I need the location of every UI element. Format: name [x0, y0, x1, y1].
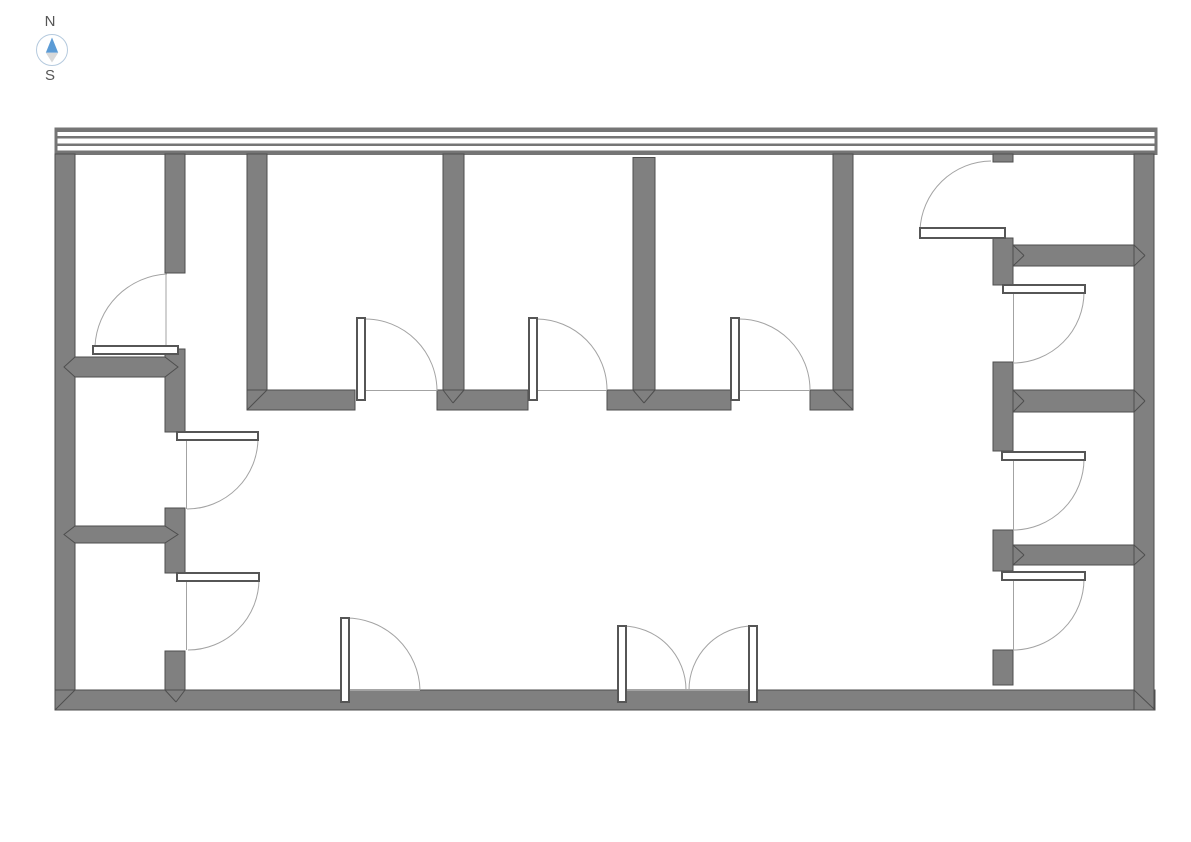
door-right-room-1-leaf	[920, 228, 1005, 238]
door-top-left-room-swing-arc	[95, 274, 167, 346]
window-band-stripe	[55, 144, 1157, 147]
right-wall-c	[993, 530, 1013, 571]
door-entry-double-right-leaf	[749, 626, 757, 702]
compass-needle-north-icon	[46, 38, 58, 53]
door-right-room-2-leaf	[1003, 285, 1085, 293]
door-left-room-3-swing-arc	[188, 579, 259, 650]
corridor-wall-c	[607, 390, 731, 410]
partition-top-3	[633, 158, 655, 411]
corridor-wall-a	[247, 390, 355, 410]
floor-plan-canvas: N S	[0, 0, 1191, 842]
door-right-room-4-leaf	[1002, 572, 1085, 580]
door-entry-single-leaf	[341, 618, 349, 702]
compass-north-label: N	[45, 13, 56, 30]
door-entry-double-left-swing-arc	[622, 626, 686, 690]
compass-rose: N S	[37, 13, 68, 84]
window-band-stripe	[55, 128, 1157, 132]
divider-left-1	[64, 357, 178, 377]
right-wall-b	[993, 362, 1013, 451]
interior-wall-left-d	[165, 651, 185, 690]
right-wall-a	[993, 238, 1013, 285]
door-corridor-2-leaf	[529, 318, 537, 400]
door-right-room-3-leaf	[1002, 452, 1085, 460]
compass-south-label: S	[45, 67, 55, 84]
door-left-room-3-leaf	[177, 573, 259, 581]
door-corridor-3-swing-arc	[739, 319, 810, 390]
floor-plan	[55, 128, 1157, 710]
partition-top-1	[247, 154, 267, 410]
door-right-room-4-swing-arc	[1013, 579, 1084, 650]
compass-needle-south-icon	[46, 53, 58, 63]
door-corridor-2-swing-arc	[537, 319, 607, 390]
door-left-room-2-swing-arc	[187, 438, 258, 509]
door-corridor-1-swing-arc	[365, 319, 437, 391]
door-left-room-2-leaf	[177, 432, 258, 440]
partition-top-4	[833, 154, 853, 410]
exterior-wall-east	[1134, 154, 1154, 710]
door-corridor-3-leaf	[731, 318, 739, 400]
door-right-room-3-swing-arc	[1013, 459, 1084, 530]
right-wall-stub-bottom	[993, 650, 1013, 685]
partition-top-2	[443, 154, 464, 410]
divider-right-3	[1013, 545, 1134, 565]
divider-right-2	[1013, 390, 1134, 412]
interior-wall-left-a	[165, 154, 185, 273]
door-entry-single-swing-arc	[345, 618, 420, 690]
floor-plan-svg: N S	[0, 0, 1191, 842]
exterior-wall-south	[55, 690, 1155, 710]
divider-left-2	[64, 526, 178, 543]
door-right-room-1-swing-arc	[920, 161, 991, 230]
window-band-endcap	[1155, 128, 1158, 155]
corridor-wall-d	[810, 390, 853, 410]
door-top-left-room-leaf	[93, 346, 178, 354]
window-band-stripe	[55, 151, 1157, 155]
door-entry-double-right-swing-arc	[689, 626, 753, 690]
door-right-room-2-swing-arc	[1013, 292, 1084, 363]
window-band-stripe	[55, 136, 1157, 139]
exterior-wall-west	[55, 154, 75, 710]
window-band-endcap	[55, 128, 58, 155]
door-corridor-1-leaf	[357, 318, 365, 400]
right-wall-stub-top	[993, 154, 1013, 162]
divider-right-1	[1013, 245, 1134, 266]
door-entry-double-left-leaf	[618, 626, 626, 702]
